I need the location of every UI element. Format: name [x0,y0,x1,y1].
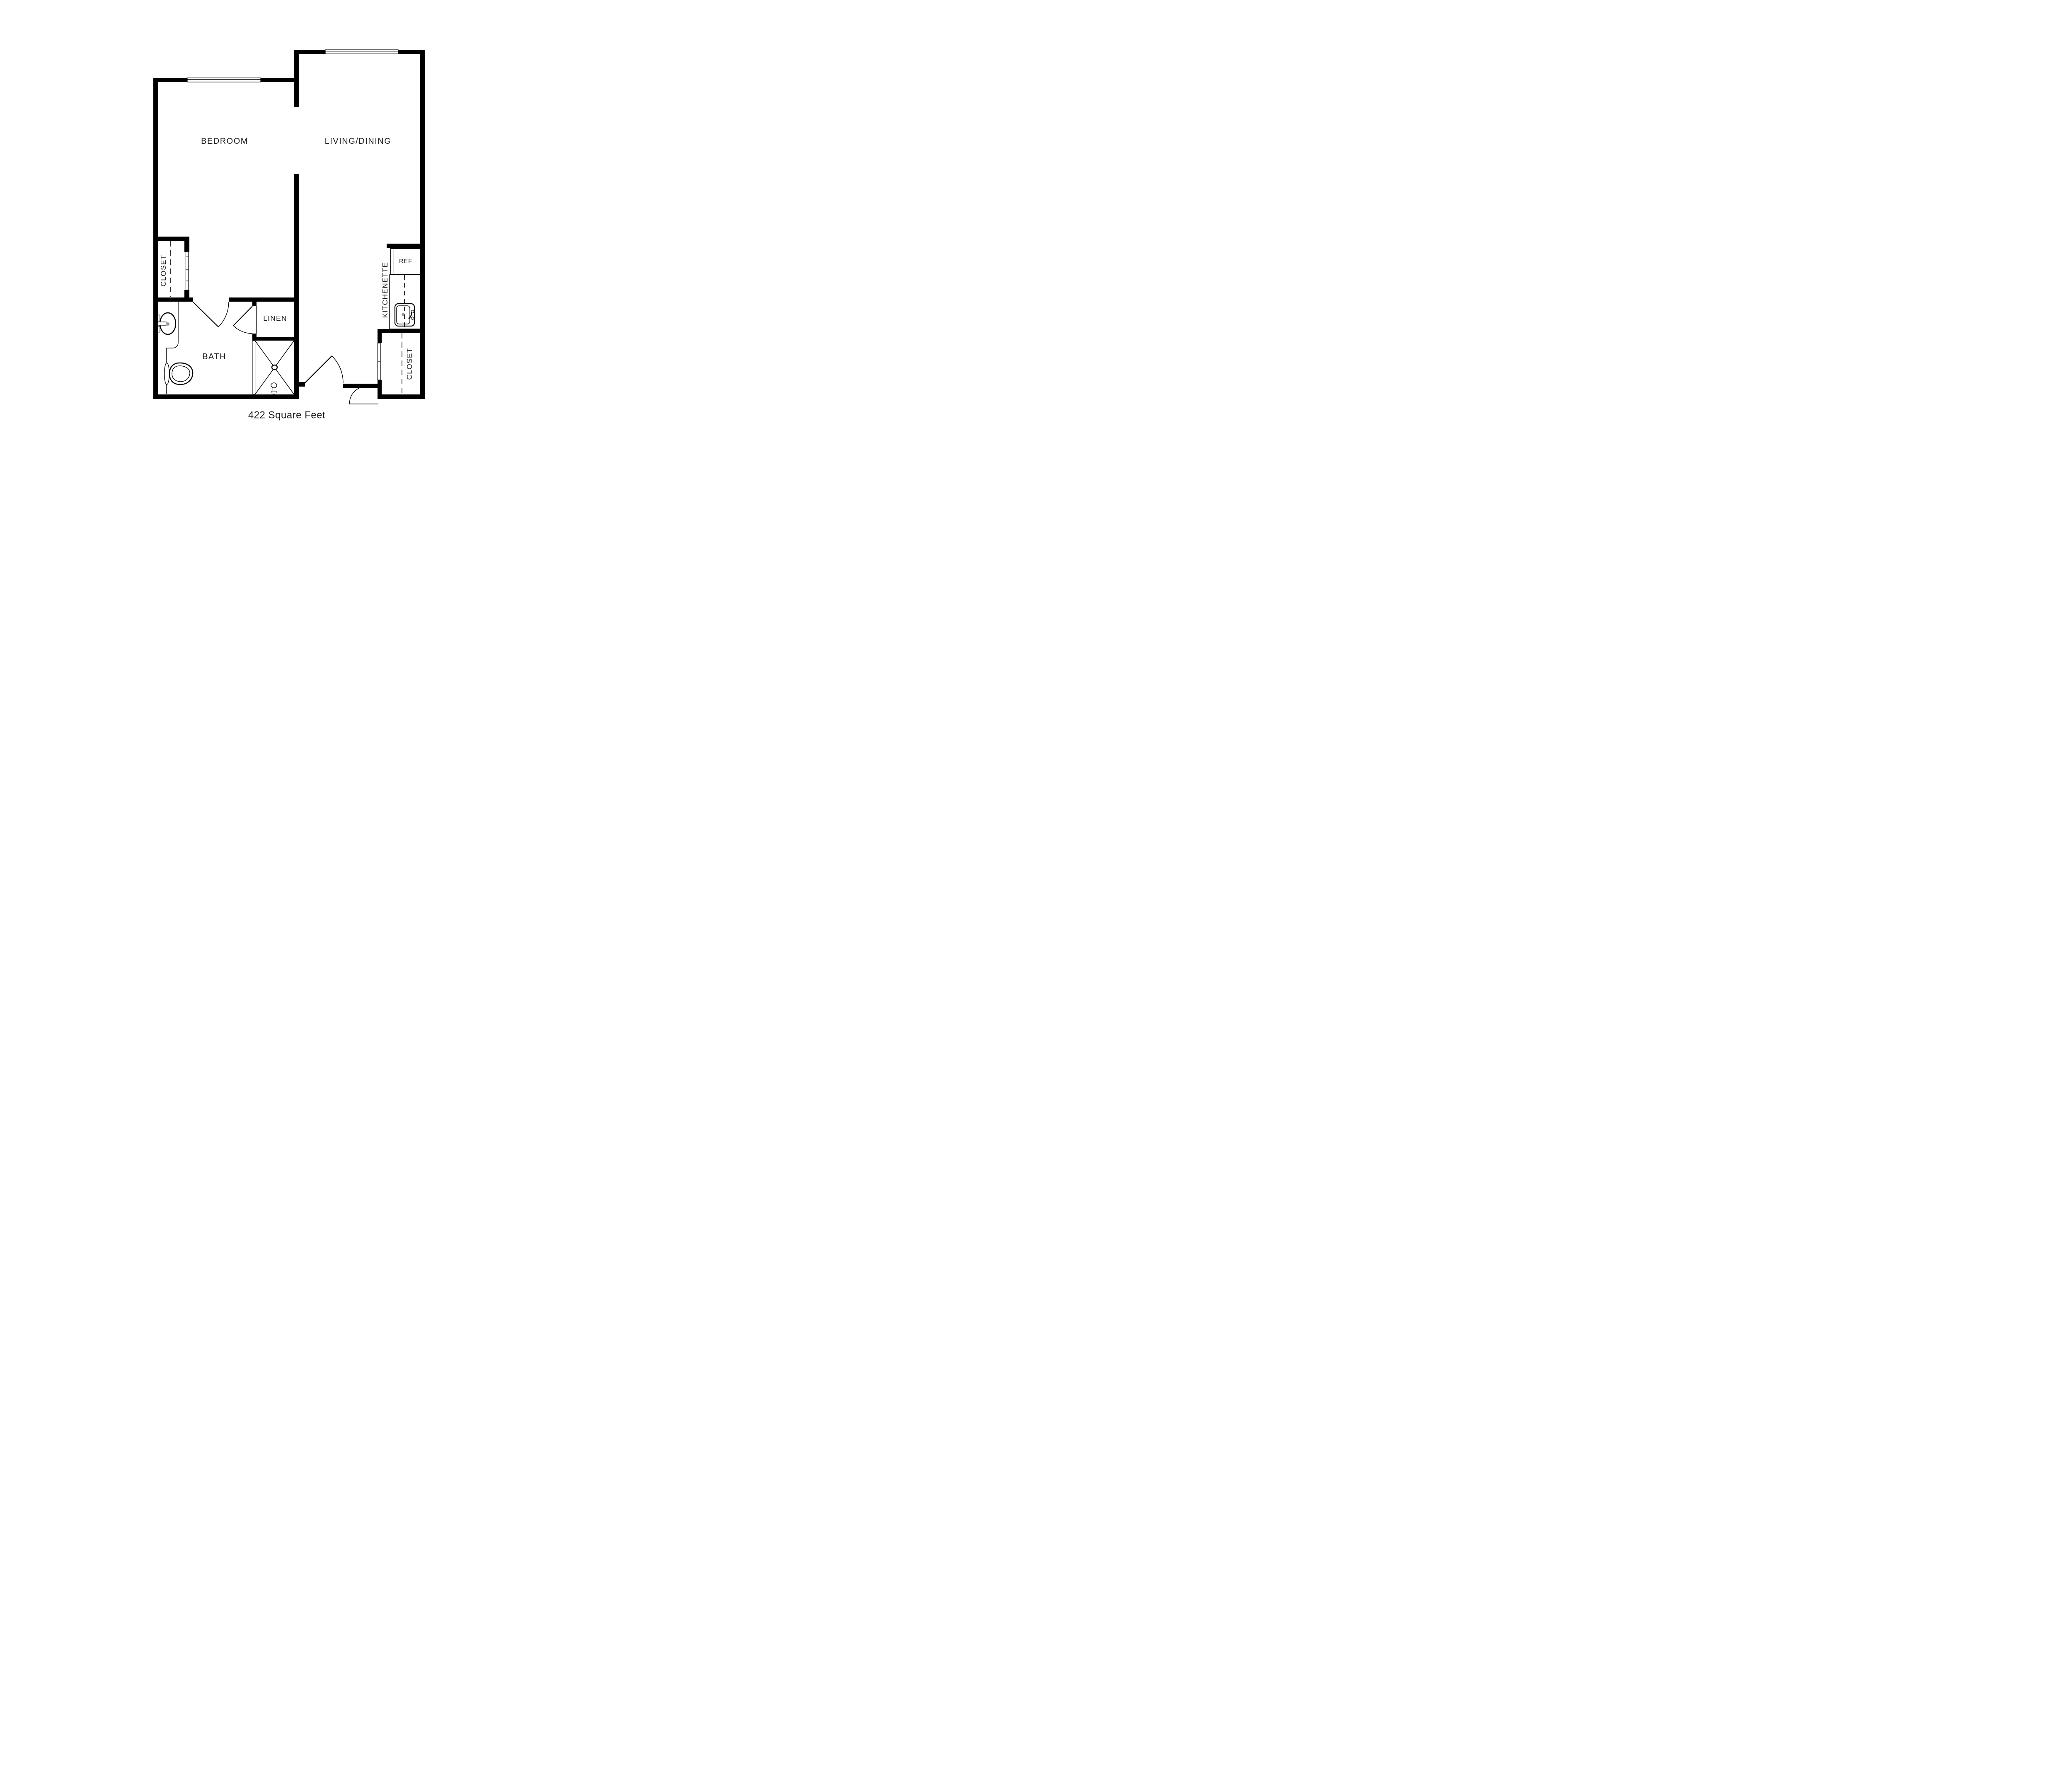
label-kitchenette: KITCHENETTE [381,262,389,318]
label-closet-entry: CLOSET [405,348,414,380]
floor-plan-svg: BEDROOM LIVING/DINING BATH LINEN CLOSET … [0,0,574,444]
wall-kitchen-top-stub [387,244,425,248]
wall-entry-stub [298,382,305,387]
label-linen: LINEN [263,314,287,322]
shower [253,341,294,394]
wall-right [420,50,425,399]
wall-kitchen-bottom [378,329,425,333]
wall-divider-upper [294,50,299,107]
walls [153,50,425,399]
entry-door-outer-swing [349,388,378,404]
wall-closet-bedroom-jamb-top [184,237,189,252]
label-bath: BATH [202,352,226,361]
bedroom-closet-door [186,252,189,290]
label-bedroom: BEDROOM [201,137,248,146]
living-window [325,50,398,54]
wall-bath-top-left [153,297,193,302]
bedroom-window [187,78,261,82]
entry-door [305,356,378,404]
shower-drain [272,365,277,370]
floor-plan-page: BEDROOM LIVING/DINING BATH LINEN CLOSET … [0,0,574,444]
caption-square-feet: 422 Square Feet [248,410,325,421]
label-closet-bedroom: CLOSET [159,254,167,286]
labels: BEDROOM LIVING/DINING BATH LINEN CLOSET … [159,137,414,421]
bath-sink [157,313,176,334]
entry-closet-door [378,343,381,380]
wall-closet-entry-bottom [378,394,425,399]
toilet [165,363,193,385]
shower-glass-edge [253,341,255,394]
label-ref: REF [399,258,412,265]
wall-divider-lower [294,174,299,398]
bath-door [193,302,229,327]
wall-bath-top-right [229,297,295,302]
label-living-dining: LIVING/DINING [325,137,392,146]
wall-bath-bottom [153,394,299,399]
wall-linen-jamb-top [252,302,257,306]
wall-entry-threshold [343,384,378,388]
linen-door [233,306,252,334]
shower-head-base [271,391,277,393]
wall-shower-top [252,337,299,341]
windows [187,50,398,82]
wall-closet-bedroom-top [153,237,189,241]
bath-sink-drain [166,322,169,326]
toilet-bowl-inner [172,366,190,382]
shower-head [271,383,277,388]
